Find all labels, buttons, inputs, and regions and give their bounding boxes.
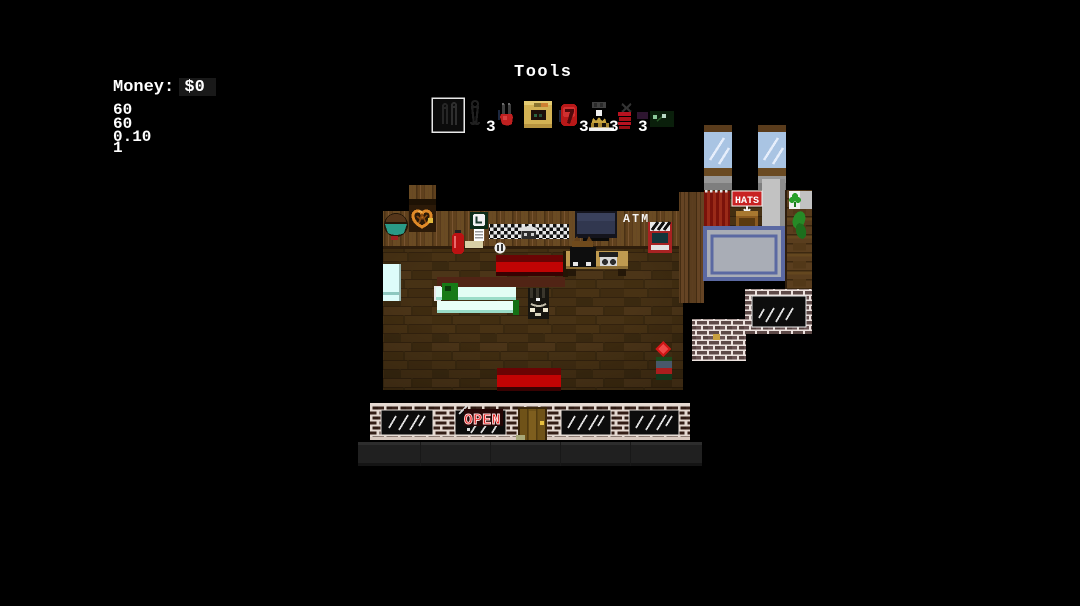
svg-text:3: 3 xyxy=(609,118,619,136)
svg-text:3: 3 xyxy=(638,118,648,136)
svg-text:3: 3 xyxy=(486,118,496,136)
svg-text:ATM: ATM xyxy=(623,213,650,226)
svg-text:OPEN: OPEN xyxy=(464,413,501,429)
svg-text:HATS: HATS xyxy=(735,196,759,207)
svg-text:3: 3 xyxy=(579,118,589,136)
